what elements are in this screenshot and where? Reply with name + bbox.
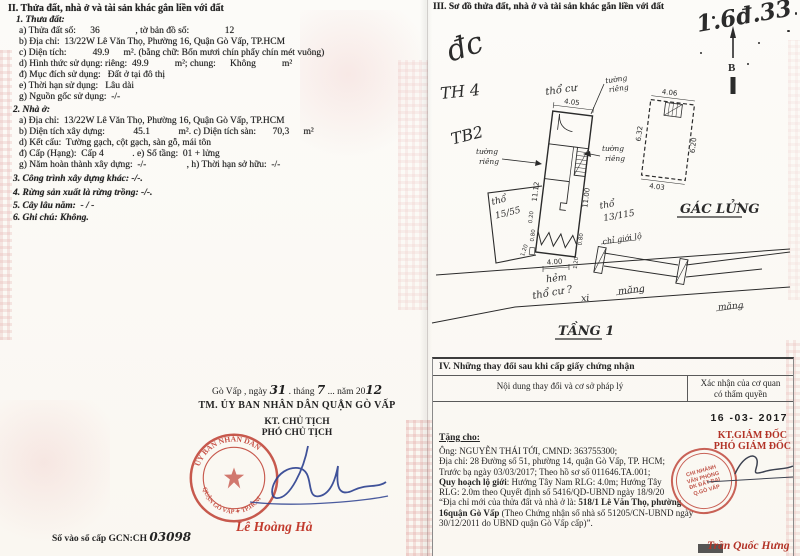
house-subsection-title: 2. Nhà ở: (13, 105, 50, 116)
item4-forest: 4. Rừng sản xuất là rừng trồng: -/-. (13, 188, 152, 199)
section4-title: IV. Những thay đổi sau khi cấp giấy chứn… (433, 359, 793, 376)
floor1-plan: 4.05 11.12 11.00 (519, 94, 602, 269)
neighbour-right-tho: thổ (599, 197, 617, 212)
land-subsection-title: 1. Thưa đất: (16, 15, 65, 26)
dim-small: 1.20 (520, 243, 530, 257)
signing-date-line: Gò Vấp , ngày 31 . tháng 7 ... năm 2012 (172, 383, 422, 397)
kt-chairman-line: KT. CHỦ TỊCH (172, 417, 422, 427)
land-line-use-form: d) Hình thức sử dụng: riêng: 49.9 m²; ch… (19, 59, 292, 70)
land-line-use-term: e) Thời hạn sử dụng: Lâu dài (19, 81, 134, 92)
date-stamp: 16 -03- 2017 (710, 412, 788, 424)
road-boundary-note: chỉ giới lộ (601, 231, 643, 246)
handwritten-note-dc: đc (442, 25, 487, 69)
change-line-address: Địa chỉ: 28 Đường số 51, phường 14, quận… (439, 456, 693, 466)
floor1-label: TẦNG 1 (558, 321, 614, 339)
change-line-new-address3: 30/12/2011 do UBND quận Gò Vấp cấp)”. (439, 518, 693, 528)
svg-text:tường: tường (602, 144, 624, 153)
change-content-text: Ông: NGUYỄN THÁI TỚI, CMND: 363755300; Đ… (439, 446, 693, 528)
dim-top: 4.05 (564, 97, 580, 107)
land-line-parcel-number: a) Thửa đất số: 36 , tờ bản đồ số: 12 (19, 26, 234, 37)
neighbour-left-number: 15/55 (494, 205, 522, 221)
alley: 4.00 hẻm xi măng măng thổ cư ? (432, 249, 790, 323)
land-line-use-origin: g) Nguồn gốc sử dụng: -/- (19, 92, 120, 103)
handwritten-note-th4: TH 4 (439, 80, 481, 103)
item5-perennials: 5. Cây lâu năm: - / - (13, 201, 94, 212)
boundary-fence-right (594, 247, 790, 285)
section4-body: 16 -03- 2017 Tặng cho: Ông: NGUYỄN THÁI … (433, 402, 793, 552)
chairman-name: Lê Hoàng Hà (236, 519, 313, 535)
land-line-area: c) Diện tích: 49.9 m². (bằng chữ: Bốn mư… (19, 48, 324, 59)
planning-rest: : Hướng Tây Nam RLG: 4.0m; Hướng Tây (507, 477, 662, 487)
north-label: B (728, 62, 736, 74)
book-entry-value: 03098 (149, 530, 191, 544)
land-line-use-purpose: đ) Mục đích sử dụng: Đất ở tại đô thị (19, 70, 165, 81)
section2-title: II. Thửa đất, nhà ở và tài sản khác gắn … (8, 3, 224, 14)
alley-word-mang: măng (618, 283, 646, 297)
site-plan-diagram: 1.6đ.33 đc TH 4 TB2 B thổ cư tường riêng… (430, 0, 800, 354)
planning-bold: Quy hoạch lộ giới (439, 477, 507, 487)
alley-word-mang2: măng (718, 300, 745, 313)
director-name: Trần Quốc Hưng (707, 540, 790, 552)
change-line-registration: Trước bạ ngày 03/03/2017; Theo hồ sơ số … (439, 467, 693, 477)
alley-word-xi: xi (581, 293, 591, 305)
dim-left: 11.12 (531, 181, 541, 202)
new-address-bold: 518/1 Lê Văn Thọ, phường (578, 497, 681, 507)
handwritten-month: 7 (317, 383, 325, 397)
book-entry-label: Số vào sổ cấp GCN:CH (52, 534, 147, 544)
svg-text:chỉ giới lộ: chỉ giới lộ (602, 231, 643, 246)
dim-small: 0.80 (530, 229, 538, 242)
item3-other-works: 3. Công trình xây dựng khác: -/-. (13, 174, 143, 185)
change-line-planning: Quy hoạch lộ giới: Hướng Tây Nam RLG: 4.… (439, 477, 693, 487)
new-address-bold2: 16quận Gò Vấp (439, 508, 502, 518)
change-line-new-address2: 16quận Gò Vấp (Theo Chứng nhận số nhà số… (439, 508, 693, 518)
alley-width-dim: 4.00 (547, 257, 563, 266)
north-arrow-icon: B (728, 26, 736, 94)
svg-text:riêng: riêng (605, 154, 625, 163)
date-text: ... năm 20 (328, 387, 366, 397)
wall-label-left: tường riêng (476, 147, 542, 166)
house-line-structure: d) Kết cấu: Tường gạch, cột gạch, sàn gỗ… (19, 138, 211, 149)
scanned-certificate-page: II. Thửa đất, nhà ở và tài sản khác gắn … (0, 0, 800, 556)
handwritten-thocu-top: thổ cư (545, 81, 580, 98)
house-line-year-term: g) Năm hoàn thành xây dựng: -/- , h) Thờ… (19, 160, 280, 171)
mezz-dim-left: 6.32 (635, 125, 645, 141)
col-authority-confirmation: Xác nhận của cơ quan có thẩm quyền (687, 376, 793, 401)
date-text: . tháng (289, 387, 315, 397)
alley-word-hem: hẻm (546, 272, 568, 285)
new-address-pre: “Địa chỉ mới của thửa đất và nhà ở là: (439, 497, 578, 507)
item6-notes: 6. Ghi chú: Không. (13, 213, 89, 224)
col-change-content: Nội dung thay đổi và cơ sở pháp lý (433, 376, 687, 401)
signing-place: Gò Vấp , ngày (212, 387, 267, 397)
wall-label-top: tường riêng (591, 73, 629, 114)
dim-right: 11.00 (581, 187, 591, 208)
neighbour-left-tho: thổ (490, 192, 509, 208)
pink-blot-top (300, 10, 420, 170)
mezzanine-plan: 4.06 6.32 6.20 4.03 (629, 85, 704, 195)
house-line-areas: b) Diện tích xây dựng: 45.1 m². c) Diện … (19, 127, 314, 138)
svg-text:riêng: riêng (608, 83, 629, 95)
kt-director-line: KT.GIÁM ĐỐC (714, 430, 791, 441)
house-line-address: a) Địa chỉ: 13/22W Lê Văn Thọ, Phường 16… (19, 116, 285, 127)
handwritten-thocu-bottom: thổ cư ? (531, 283, 573, 302)
col2-line1: Xác nhận của cơ quan (690, 378, 791, 389)
change-line-owner: Ông: NGUYỄN THÁI TỚI, CMND: 363755300; (439, 446, 693, 456)
guilloche-strip-left (0, 50, 12, 340)
handwritten-corner-number: 1.6đ.33 (694, 0, 793, 38)
director-signature (705, 446, 795, 490)
handwritten-day: 31 (270, 383, 287, 397)
new-address-rest: (Theo Chứng nhận số nhà số 51205/CN-UBND… (502, 508, 694, 518)
committee-line: TM. ỦY BAN NHÂN DÂN QUẬN GÒ VẤP (172, 400, 422, 411)
handwritten-note-tb2: TB2 (449, 122, 485, 148)
dim-small: 0.20 (528, 210, 536, 223)
mezz-dim-bottom: 4.03 (649, 182, 665, 192)
dim-small: 0.80 (578, 232, 586, 245)
svg-text:tường: tường (476, 147, 498, 156)
mezz-dim-top: 4.06 (661, 88, 678, 98)
house-line-grade-floors: đ) Cấp (Hạng): Cấp 4 . e) Số tầng: 01 + … (19, 149, 220, 160)
neighbour-right-number: 13/115 (603, 209, 636, 224)
mezz-dim-right: 6.20 (689, 137, 699, 153)
book-entry-number: Số vào sổ cấp GCN:CH 03098 (52, 530, 191, 544)
section4-table-header: Nội dung thay đổi và cơ sở pháp lý Xác n… (433, 376, 793, 402)
section4-changes: IV. Những thay đổi sau khi cấp giấy chứn… (432, 357, 794, 556)
col2-line2: có thẩm quyền (690, 389, 791, 400)
gift-label: Tặng cho: (439, 433, 480, 443)
dim-small: 1.20 (573, 256, 581, 269)
handwritten-year: 12 (365, 383, 382, 397)
change-line-rlg: RLG: 2.0m theo Quyết định số 5416/QD-UBN… (439, 487, 693, 497)
land-line-address: b) Địa chỉ: 13/22W Lê Văn Thọ, Phường 16… (19, 37, 285, 48)
mezzanine-label: GÁC LỬNG (680, 199, 760, 217)
svg-text:riêng: riêng (479, 157, 499, 166)
chairman-signature (220, 438, 390, 513)
change-line-new-address1: “Địa chỉ mới của thửa đất và nhà ở là: 5… (439, 497, 693, 507)
